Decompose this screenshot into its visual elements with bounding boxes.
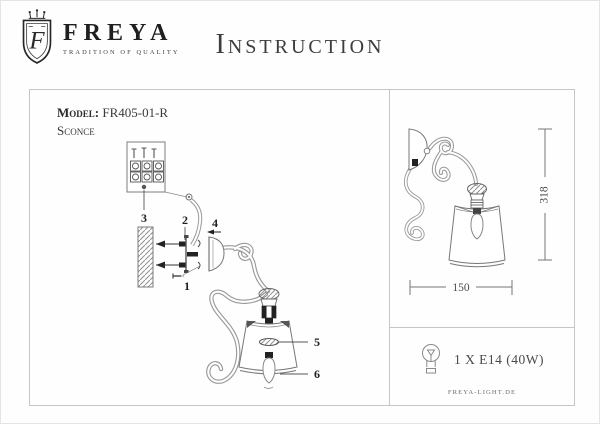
part-label-5: 5 (314, 335, 320, 349)
height-dim-label: 318 (539, 186, 551, 204)
bulb-spec-section: 1 X E14 (40W) FREYA-LIGHT.DE (390, 327, 574, 405)
part-label-3: 3 (141, 211, 147, 225)
canopy (198, 237, 224, 271)
freya-shield-crown-icon: F (21, 9, 53, 65)
dimension-drawing: 318 150 (390, 90, 574, 327)
width-dimension: 150 (410, 280, 512, 295)
wall-section (138, 227, 153, 287)
exploded-assembly-diagram: 1 2 3 4 5 6 (30, 90, 390, 405)
shade-ring (260, 339, 279, 346)
terminal-detail-box (127, 142, 187, 197)
bulb-icon (420, 340, 442, 380)
lamp-holder (468, 184, 487, 209)
mounting-screws (156, 241, 186, 269)
hanging-wire (406, 169, 423, 239)
part-label-2: 2 (182, 213, 188, 227)
wall-plate (409, 129, 430, 170)
width-dim-label: 150 (452, 282, 470, 294)
page-title: Instruction (151, 29, 449, 61)
part-label-4: 4 (212, 216, 218, 230)
scroll-arm (430, 139, 476, 184)
part-label-6: 6 (314, 367, 320, 381)
bulb-spec-label: 1 X E14 (40W) (454, 352, 544, 368)
height-dimension: 318 (537, 129, 553, 260)
part-label-1: 1 (184, 279, 190, 293)
sconce-side-view: 318 150 (390, 90, 574, 327)
assembly-panel: Model: FR405-01-R Sconce (30, 90, 389, 405)
spec-panel: 318 150 (389, 90, 574, 405)
logo-letter: F (28, 27, 45, 54)
lamp-shade (449, 206, 505, 267)
website-label: FREYA-LIGHT.DE (390, 389, 574, 396)
instruction-sheet: F FREYA TRADITION OF QUALITY Instruction… (0, 0, 600, 424)
canopy-direction-arrow (207, 230, 221, 235)
content-frame: Model: FR405-01-R Sconce (29, 89, 575, 406)
